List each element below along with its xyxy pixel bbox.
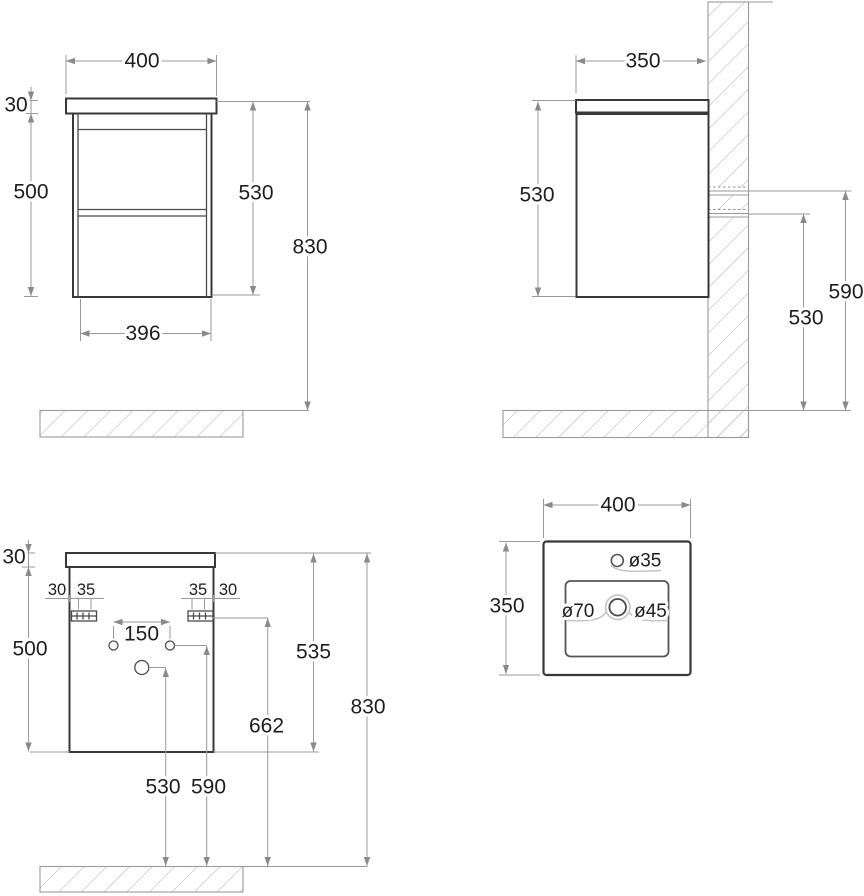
lower-mounting-rail <box>708 210 749 218</box>
dim-label-panel-top-to-body-bottom: 535 <box>296 641 331 664</box>
side-view: 350 530 590 530 <box>503 2 864 438</box>
drawing-sheet: 400 30 500 530 830 396 <box>0 0 864 896</box>
dim-label-depth: 350 <box>625 50 660 73</box>
dim-label-total-height: 830 <box>292 236 327 259</box>
dim-label-width-bottom: 396 <box>125 322 160 345</box>
dim-label-drain-height: 530 <box>145 776 180 799</box>
floor-section <box>40 867 243 893</box>
dim-label-width-top: 400 <box>124 50 159 73</box>
dim-label-body-height: 500 <box>12 638 47 661</box>
dim-label-hole-offset-left: 35 <box>77 581 95 599</box>
dim-label-total-height: 830 <box>350 696 385 719</box>
countertop-panel-side <box>576 100 709 113</box>
dim-label-body-height: 500 <box>13 181 48 204</box>
front-view: 400 30 500 530 830 396 <box>4 50 327 438</box>
wall-section <box>708 2 749 438</box>
countertop-panel-rear <box>66 553 215 567</box>
dim-label-upper-rail-height: 590 <box>828 281 863 304</box>
dim-label-basin-width: 400 <box>600 494 635 517</box>
dim-label-lower-rail-height: 530 <box>788 307 823 330</box>
label-drain: ø45 <box>634 601 667 622</box>
dim-label-panel-thickness: 30 <box>4 94 27 117</box>
vanity-technical-drawing: 400 30 500 530 830 396 <box>0 0 864 896</box>
dim-label-height-to-body-bottom: 530 <box>238 182 273 205</box>
cabinet-body <box>73 114 212 298</box>
label-faucet-hole: ø35 <box>629 551 662 572</box>
dim-label-edge-offset-right: 30 <box>219 581 237 599</box>
dim-label-bracket-height: 662 <box>249 715 284 738</box>
dim-label-basin-depth: 350 <box>489 595 524 618</box>
dim-label-hole-offset-right: 35 <box>189 581 207 599</box>
dim-label-panel-thickness: 30 <box>2 546 25 569</box>
floor-section <box>503 411 749 438</box>
cabinet-body-side <box>577 114 709 297</box>
dim-label-supply-height: 590 <box>191 776 226 799</box>
upper-mounting-rail <box>708 187 749 195</box>
basin-view: ø35 ø70 ø45 400 350 <box>489 494 690 676</box>
dim-label-hole-spacing: 150 <box>124 623 159 646</box>
dim-label-cabinet-height: 530 <box>519 184 554 207</box>
label-overflow: ø70 <box>562 601 595 622</box>
countertop-panel <box>66 99 217 114</box>
dim-label-edge-offset-left: 30 <box>48 581 66 599</box>
floor-section <box>40 411 243 438</box>
rear-view: 30 35 35 30 150 30 500 530 590 662 535 8… <box>2 540 385 892</box>
